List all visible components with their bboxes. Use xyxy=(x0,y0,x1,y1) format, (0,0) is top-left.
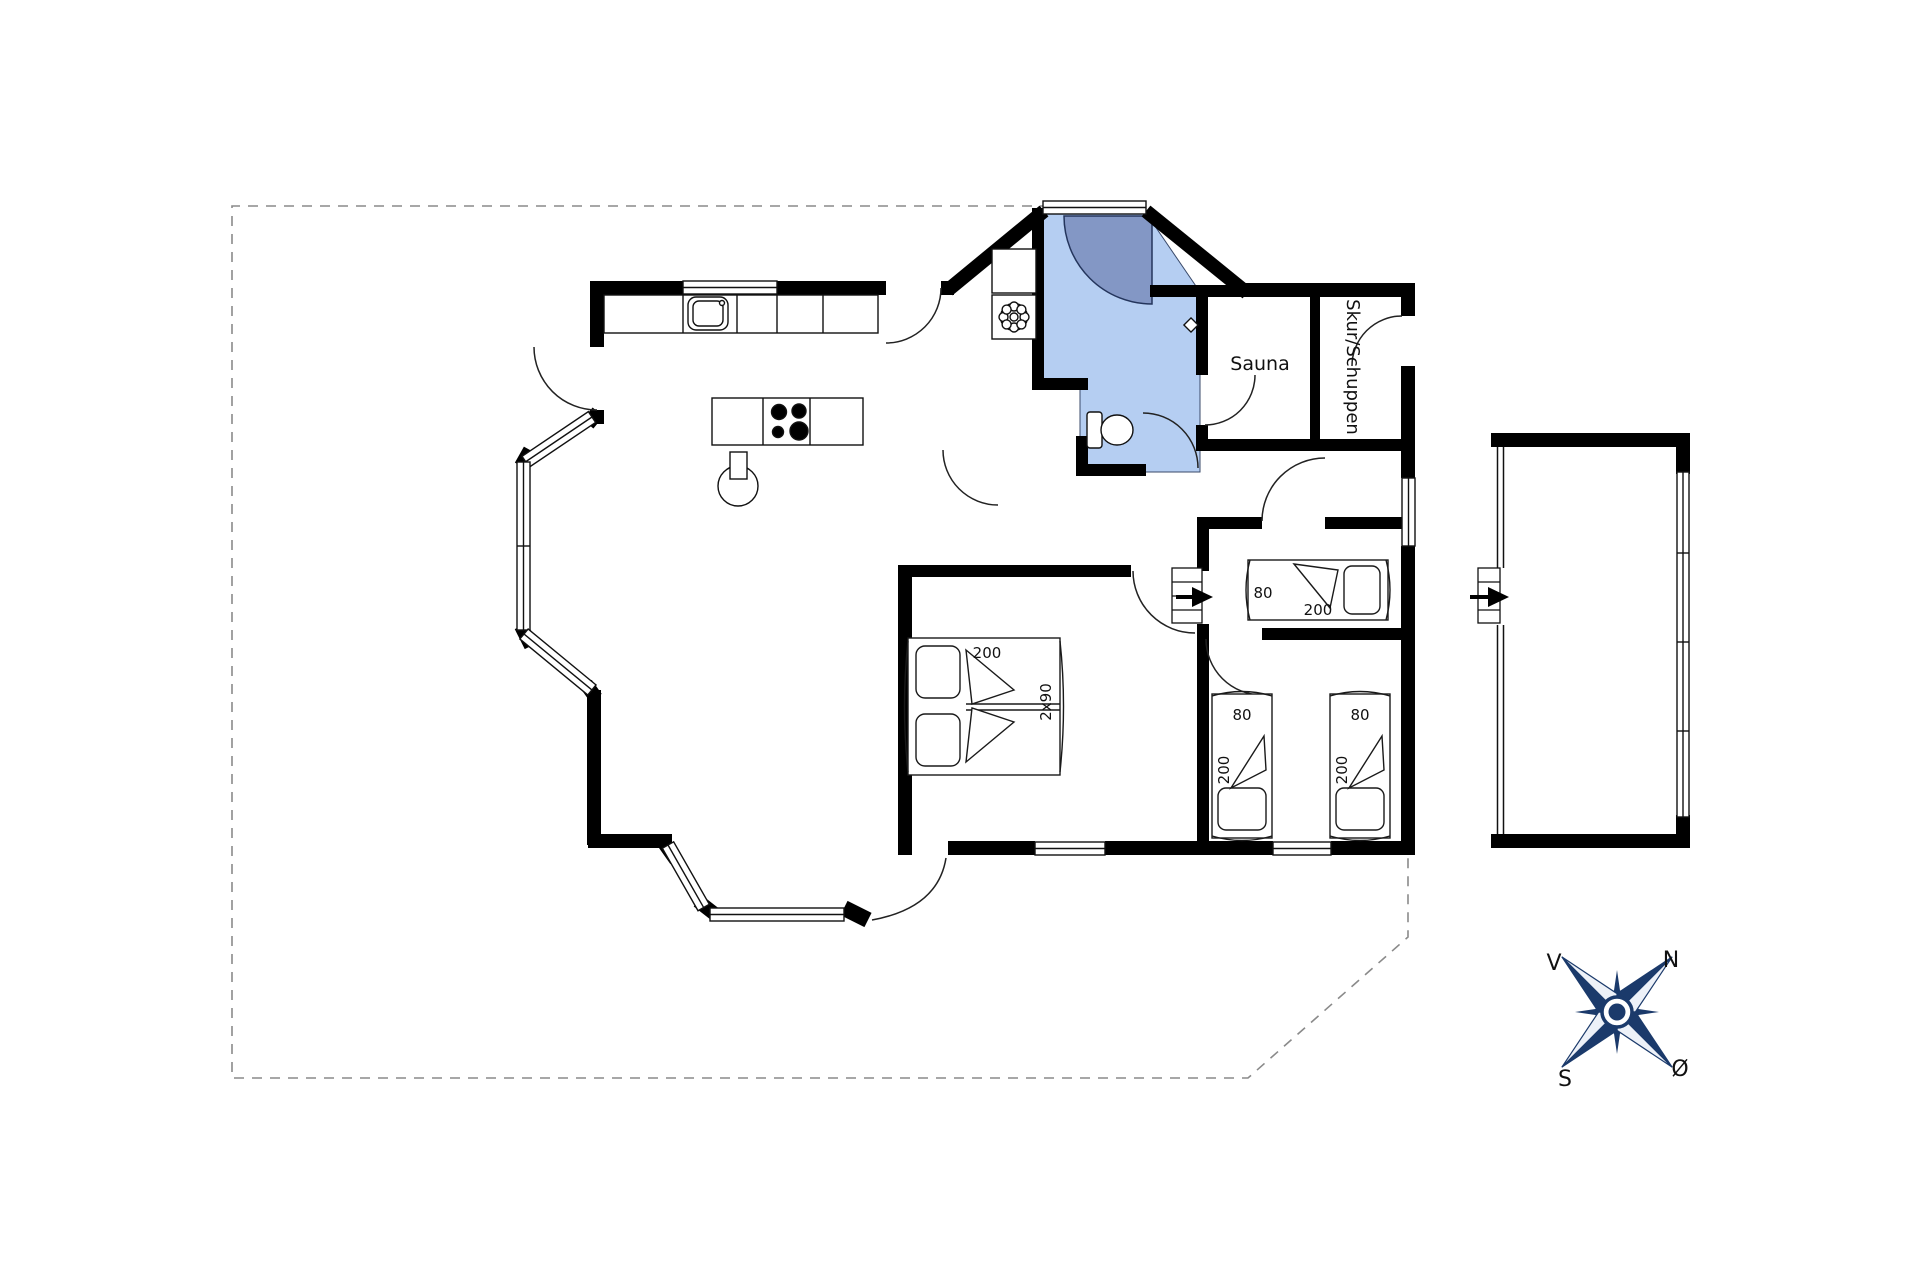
compass-label-east: Ø xyxy=(1671,1057,1688,1082)
door-hallroom xyxy=(1262,458,1325,521)
shed-label: Skur/Schuppen xyxy=(1342,299,1363,435)
door-sauna xyxy=(1205,375,1255,425)
property-boundary xyxy=(232,206,1408,1078)
door-kidsroom xyxy=(1206,639,1262,695)
bed-width-label: 80 xyxy=(1350,706,1369,724)
bed-width-label: 80 xyxy=(1232,706,1251,724)
kitchen-window xyxy=(683,281,777,294)
main-house: 200 2x90 80 200 80 200 80 xyxy=(517,201,1415,921)
pillow xyxy=(1336,788,1384,830)
kidsroom-window xyxy=(1273,842,1331,855)
annex-building xyxy=(1470,433,1690,848)
bed-length-label: 200 xyxy=(1333,756,1351,785)
kitchen-counter xyxy=(604,295,878,333)
pillow xyxy=(1344,566,1380,614)
sauna-label: Sauna xyxy=(1230,353,1289,375)
annex-west-wall xyxy=(1498,447,1504,834)
bathroom-window xyxy=(1043,201,1146,214)
bay-window-south-diag xyxy=(662,842,709,911)
compass-rose: N Ø S V xyxy=(1507,902,1728,1123)
kitchen-sink xyxy=(688,297,728,330)
door-west xyxy=(534,347,597,410)
bay-window-left xyxy=(517,462,530,630)
door-terrace xyxy=(872,858,946,920)
bedroom-window xyxy=(1035,842,1105,855)
bay-window-south xyxy=(710,908,844,921)
pillow xyxy=(1218,788,1266,830)
kids-bed-left: 80 200 xyxy=(1212,692,1272,841)
bed-length-label: 200 xyxy=(1215,756,1233,785)
toilet-icon xyxy=(1087,412,1133,448)
pillow xyxy=(916,714,960,766)
washing-machine-icon xyxy=(992,295,1036,339)
hall-window xyxy=(1402,478,1415,546)
bed-length-label: 200 xyxy=(973,644,1002,662)
wood-stove-icon xyxy=(718,452,758,506)
boundary-line xyxy=(232,206,1408,1078)
compass-label-south: S xyxy=(1558,1067,1572,1092)
kitchen-island xyxy=(712,398,863,445)
hall-single-bed: 80 200 xyxy=(1246,560,1390,620)
bed-width-label: 80 xyxy=(1253,584,1272,602)
faucet-icon xyxy=(720,301,725,306)
annex-entrance xyxy=(1470,568,1509,623)
main-entrance xyxy=(1172,568,1213,623)
annex-window-east xyxy=(1677,472,1689,817)
bay-window-lower xyxy=(520,629,596,695)
double-bed: 200 2x90 xyxy=(905,638,1064,775)
bed-length-label: 200 xyxy=(1304,601,1333,619)
cabinet xyxy=(992,249,1036,293)
kids-bed-right: 80 200 xyxy=(1330,692,1390,841)
floor-plan-page: 200 2x90 80 200 80 200 80 xyxy=(0,0,1920,1279)
entrance-arrow-icon xyxy=(1470,587,1509,607)
bed-width-label: 2x90 xyxy=(1037,683,1055,721)
door-kitchen-north xyxy=(886,288,941,343)
pillow xyxy=(916,646,960,698)
compass-label-west: V xyxy=(1546,951,1561,976)
bay-window-upper xyxy=(522,412,596,468)
door-hall xyxy=(943,450,998,505)
compass-label-north: N xyxy=(1663,948,1679,973)
